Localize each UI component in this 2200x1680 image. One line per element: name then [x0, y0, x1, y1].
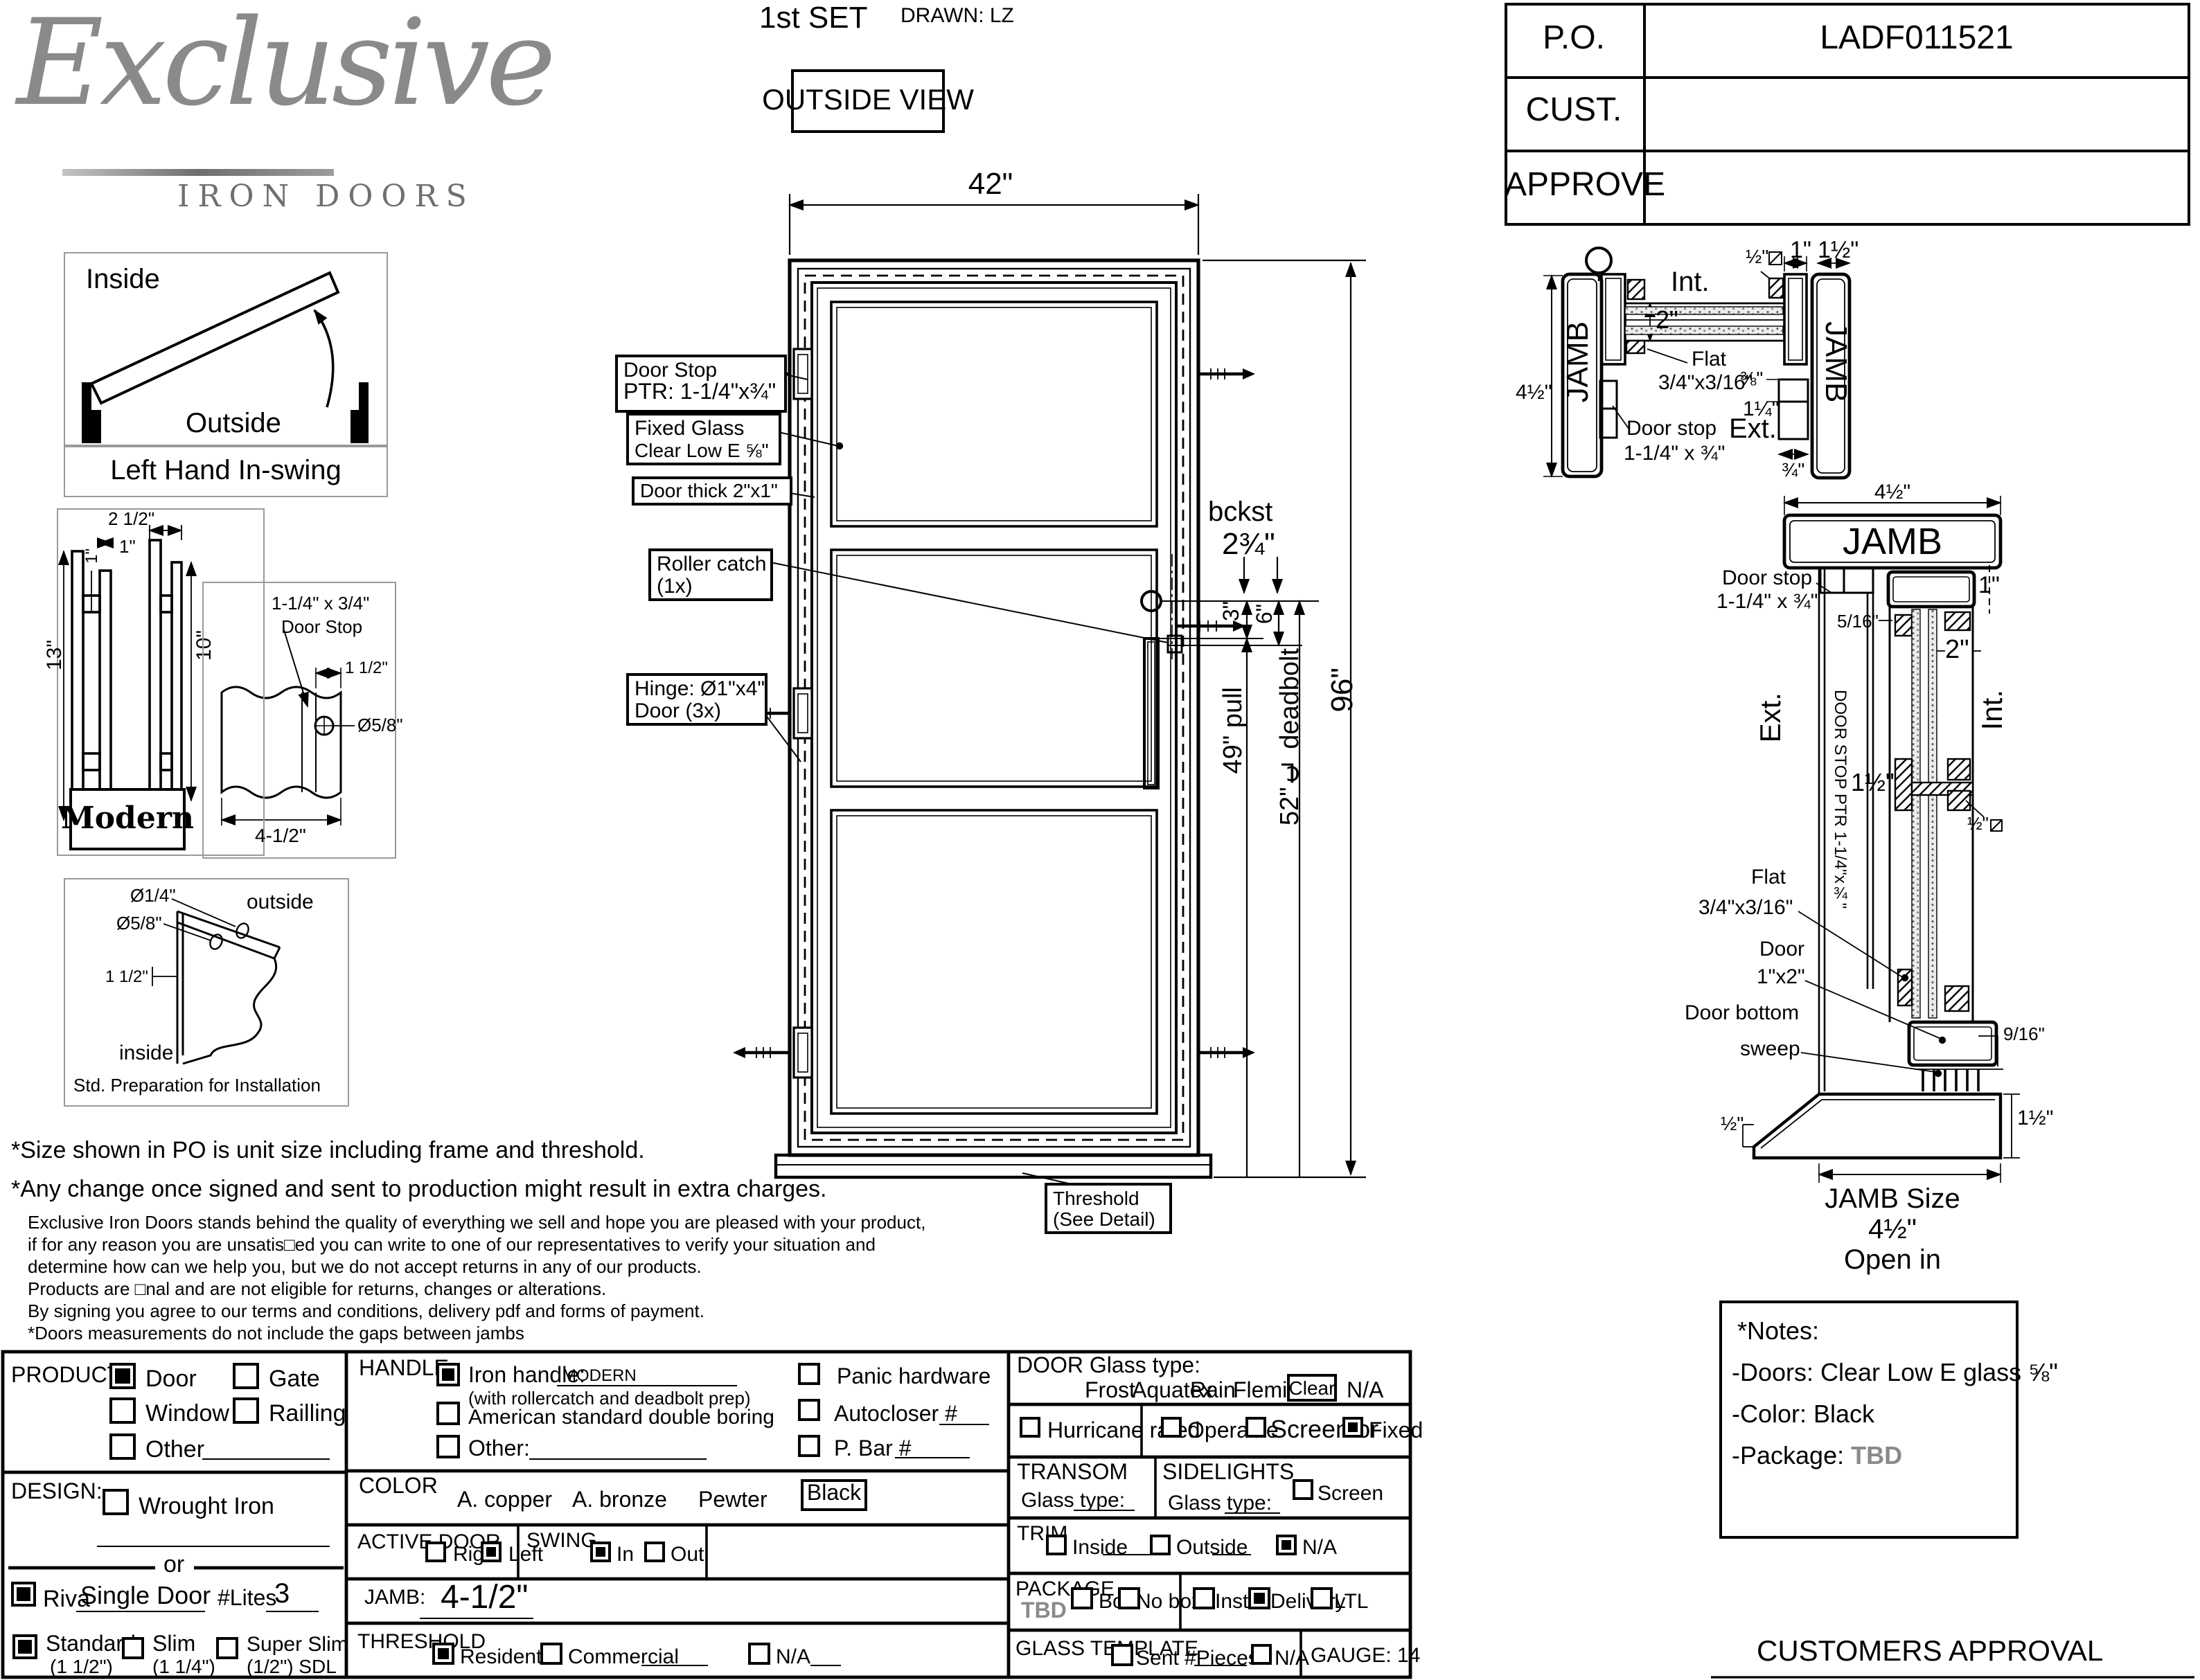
sill-size-value: 4½": [1784, 1216, 2001, 1245]
po-label: P.O.: [1505, 22, 1643, 57]
doorstop-dim-width: 4-1/2": [255, 825, 306, 846]
product-gate-checkbox[interactable]: [233, 1363, 259, 1389]
sidelights-screen-checkbox[interactable]: [1293, 1479, 1313, 1500]
trim-na-label: N/A: [1302, 1537, 1337, 1559]
sill-1-dim: 1": [1978, 573, 2000, 598]
po-table-line: [1505, 150, 2190, 152]
trim-inside-label: Inside: [1072, 1537, 1128, 1559]
swing-out-label: Out: [671, 1544, 704, 1566]
handle-dim-2half: 2 1/2": [108, 510, 154, 528]
drawn-label: DRAWN: LZ: [901, 6, 1014, 27]
sill-ext-label: Ext.: [1757, 692, 1787, 742]
panic-checkbox[interactable]: [798, 1363, 820, 1385]
sill-45-dim: 4½": [1784, 482, 2001, 503]
glass-frost-label[interactable]: Frost: [1085, 1381, 1135, 1404]
prep-outside-label: outside: [247, 892, 314, 913]
prep-dim-1half: 1 1/2": [105, 968, 148, 985]
glass-rain-label[interactable]: Rain: [1190, 1381, 1236, 1404]
doorstop-title-2: Door Stop: [281, 618, 362, 636]
product-other-label: Other: [145, 1438, 204, 1462]
riva-value[interactable]: Single Door: [80, 1583, 211, 1609]
sill-jamb-label: JAMB: [1784, 522, 2001, 561]
deadbolt-height-dim: 52"℄ deadbolt: [1277, 648, 1305, 825]
package-install-checkbox[interactable]: [1193, 1587, 1215, 1609]
riva-checkbox[interactable]: [11, 1582, 36, 1607]
notes-title: *Notes:: [1737, 1319, 1819, 1344]
callout-doorstop-l2: PTR: 1-1/4"x¾": [623, 382, 779, 404]
threshold-na-checkbox[interactable]: [748, 1643, 770, 1665]
color-pewter-label[interactable]: Pewter: [698, 1490, 768, 1513]
callout-roller-l1: Roller catch: [657, 554, 765, 575]
handle-other-label: Other:: [468, 1439, 530, 1462]
riva-blank[interactable]: [76, 1611, 205, 1612]
jamb-head-left-label: JAMB: [1563, 321, 1595, 402]
disclaimer-line2: *Any change once signed and sent to prod…: [11, 1177, 827, 1201]
drawing-sheet: 1st SET DRAWN: LZ OUTSIDE VIEW P.O. LADF…: [0, 0, 2200, 1680]
package-ltl-label: LTL: [1334, 1591, 1368, 1613]
jamb-head-38-dim: ⅜": [1740, 368, 1763, 388]
sidelights-glass-label: Glass type:: [1168, 1493, 1272, 1514]
sill-bottom-l1: Door bottom: [1685, 1003, 1799, 1024]
package-box-checkbox[interactable]: [1071, 1587, 1093, 1609]
callout-doorthick-l1: Door thick 2"x1": [640, 481, 784, 501]
trim-outside-checkbox[interactable]: [1150, 1535, 1171, 1555]
handle-label: HANDLE: [359, 1359, 449, 1382]
design-blank[interactable]: [97, 1546, 330, 1547]
color-black-selected[interactable]: Black: [801, 1479, 867, 1511]
thickness-superslim-sub: (1/2") SDL: [247, 1656, 337, 1677]
handle-other-checkbox[interactable]: [436, 1435, 460, 1458]
sidelights-screen-label: Screen: [1318, 1483, 1383, 1505]
jamb-row-label: JAMB:: [364, 1587, 425, 1609]
thickness-superslim-label: Super Slim: [247, 1634, 348, 1656]
callout-hinge: Hinge: Ø1"x4" Door (3x): [626, 673, 768, 726]
pull-height-dim: 49" pull: [1221, 687, 1248, 774]
outside-view-label: OUTSIDE VIEW: [762, 86, 974, 116]
callout-doorthick: Door thick 2"x1": [632, 476, 792, 506]
sill-halfsq-dim: ½": [1967, 814, 1989, 833]
package-tbd-value: TBD: [1021, 1601, 1067, 1624]
thickness-standard-sub: (1 1/2"): [50, 1656, 113, 1677]
door-height-dim: 96": [1327, 668, 1359, 713]
callout-hinge-l2: Door (3x): [635, 700, 759, 722]
autocloser-checkbox[interactable]: [798, 1399, 820, 1421]
pbar-label: P. Bar #: [834, 1439, 912, 1462]
handle-dim-13: 13": [44, 640, 66, 670]
jamb-head-int-label: Int.: [1671, 269, 1710, 298]
sill-int-label: Int.: [1978, 690, 2009, 730]
sill-door-l1: Door: [1759, 939, 1804, 960]
sill-bottom-l2: sweep: [1740, 1039, 1800, 1060]
prep-inside-label: inside: [119, 1043, 173, 1064]
glass-clear-selected[interactable]: Clear: [1287, 1374, 1337, 1402]
product-door-label: Door: [145, 1367, 197, 1391]
thickness-slim-label: Slim: [152, 1634, 195, 1657]
jamb-head-flat-l1: Flat: [1692, 349, 1726, 370]
sill-112b-dim: 1½": [2017, 1108, 2053, 1129]
swing-inside-label: Inside: [86, 266, 160, 295]
logo-subtitle: IRON DOORS: [177, 183, 475, 215]
lites-blank[interactable]: [266, 1611, 319, 1612]
handle-style-box: Modern: [69, 788, 186, 850]
package-nobox-label: No box: [1136, 1591, 1202, 1613]
disclaimer-line6: Products are □nal and are not eligible f…: [28, 1280, 606, 1298]
backset-value: 2¾": [1222, 529, 1275, 561]
jamb-head-halfsq-dim: ½": [1746, 247, 1768, 267]
logo-script: Exclusive: [17, 3, 552, 127]
jamb-head-15-dim: 1½": [1818, 238, 1859, 262]
template-sent-blank[interactable]: [1194, 1665, 1247, 1666]
template-sent-label: Sent #Pieces: [1136, 1648, 1259, 1670]
disclaimer-line7: By signing you agree to our terms and co…: [28, 1302, 704, 1321]
trim-outside-blank[interactable]: [1212, 1554, 1251, 1555]
threshold-commercial-blank[interactable]: [641, 1665, 708, 1666]
handle-american-label: American standard double boring: [468, 1407, 774, 1429]
jamb-row-blank[interactable]: [420, 1618, 533, 1619]
jamb-head-1-dim: 1": [1790, 238, 1811, 262]
callout-threshold-l1: Threshold: [1053, 1188, 1164, 1208]
design-wrought-checkbox[interactable]: [103, 1489, 129, 1515]
operable-checkbox[interactable]: [1161, 1417, 1182, 1438]
design-label: DESIGN:: [11, 1482, 103, 1505]
sill-doorstop-ptr-label: DOOR STOP PTR 1-1/4"x¾": [1831, 690, 1849, 909]
glass-na-label[interactable]: N/A: [1347, 1381, 1383, 1404]
thickness-slim-checkbox[interactable]: [122, 1637, 144, 1659]
swing-in-label: In: [616, 1544, 634, 1566]
sill-door-l2: 1"x2": [1757, 967, 1805, 988]
notes-package-label: -Package:: [1732, 1442, 1844, 1469]
product-door-checkbox[interactable]: [109, 1363, 136, 1389]
fixed-label: Fixed: [1369, 1421, 1423, 1444]
jamb-head-34-dim: ¾": [1782, 460, 1804, 480]
logo-underline: [62, 169, 334, 176]
sidelights-glass-blank[interactable]: [1225, 1512, 1280, 1514]
sill-size-label: JAMB Size: [1784, 1186, 2001, 1215]
swing-outside-label: Outside: [186, 410, 281, 439]
handle-dim-1b: 1": [83, 548, 100, 564]
design-or-label: or: [163, 1553, 184, 1577]
pbar-checkbox[interactable]: [798, 1435, 820, 1457]
lites-label: #Lites: [218, 1589, 276, 1611]
thickness-slim-sub: (1 1/4"): [152, 1656, 215, 1677]
handle-iron-checkbox[interactable]: [436, 1363, 460, 1386]
trim-outside-label: Outside: [1176, 1537, 1248, 1559]
customers-approval-label: CUSTOMERS APPROVAL: [1757, 1637, 2103, 1668]
prep-caption: Std. Preparation for Installation: [73, 1076, 321, 1095]
outside-view-box: OUTSIDE VIEW: [791, 69, 945, 133]
glass-type-label: DOOR Glass type:: [1017, 1356, 1200, 1379]
doorstop-title-1: 1-1/4" x 3/4": [272, 594, 369, 613]
handle-other-blank[interactable]: [529, 1458, 707, 1460]
callout-fixedglass-l1: Fixed Glass: [635, 418, 773, 440]
approve-label: APPROVE: [1505, 169, 1643, 204]
transom-glass-blank[interactable]: [1074, 1510, 1135, 1511]
hinge-icon: [794, 349, 812, 1078]
notes-package: -Package: TBD: [1732, 1443, 1902, 1469]
product-label: PRODUCT:: [11, 1366, 125, 1388]
sill-stop-l2: 1-1/4" x ¾": [1716, 591, 1818, 613]
pbar-blank[interactable]: [895, 1457, 970, 1458]
jamb-row-value[interactable]: 4-1/2": [441, 1582, 528, 1616]
prep-dim-quarter: Ø1/4": [130, 886, 176, 905]
callout-threshold: Threshold (See Detail): [1045, 1183, 1172, 1234]
color-black-label: Black: [807, 1483, 861, 1506]
jamb-head-ext-label: Ext.: [1729, 415, 1777, 445]
callout-roller-l2: (1x): [657, 575, 765, 597]
transom-label: TRANSOM: [1017, 1463, 1128, 1485]
disclaimer-line8: *Doors measurements do not include the g…: [28, 1324, 524, 1343]
door-width-dim: 42": [783, 169, 1198, 201]
notes-doors: -Doors: Clear Low E glass ⅝": [1732, 1360, 2058, 1386]
sill-516-dim: 5/16": [1837, 612, 1879, 631]
handle-dim-1a: 1": [119, 537, 136, 556]
template-na-checkbox[interactable]: [1251, 1644, 1272, 1665]
autocloser-blank[interactable]: [939, 1424, 989, 1425]
doorstop-dim-hole: Ø5/8": [357, 716, 403, 735]
sill-flat-l2: 3/4"x3/16": [1698, 897, 1793, 919]
po-value: LADF011521: [1643, 22, 2190, 57]
threshold-na-blank[interactable]: [810, 1665, 841, 1666]
sill-916-dim: 9/16": [2003, 1025, 2045, 1044]
backset-label: bckst: [1208, 499, 1272, 528]
threshold-na-label: N/A: [776, 1647, 810, 1668]
sill-stop-l1: Door stop: [1722, 568, 1812, 589]
disclaimer-line3: Exclusive Iron Doors stands behind the q…: [28, 1213, 925, 1232]
callout-roller: Roller catch (1x): [648, 548, 773, 601]
callout-threshold-l2: (See Detail): [1053, 1208, 1164, 1228]
fixed-checkbox[interactable]: [1342, 1417, 1363, 1438]
callout-fixedglass: Fixed Glass Clear Low E ⅝": [626, 413, 781, 465]
dim-3in: 3": [1222, 601, 1245, 621]
lites-value[interactable]: 3: [274, 1580, 290, 1609]
panic-label: Panic hardware: [837, 1367, 991, 1390]
thickness-standard-checkbox[interactable]: [12, 1634, 37, 1659]
sill-112-dim: 1½": [1851, 770, 1895, 796]
threshold-commercial-checkbox[interactable]: [540, 1643, 562, 1665]
set-label: 1st SET: [759, 3, 868, 35]
sill-flat-l1: Flat: [1751, 867, 1786, 888]
jamb-head-45-dim: 4½": [1516, 382, 1552, 404]
product-gate-label: Gate: [269, 1367, 320, 1391]
callout-fixedglass-l2: Clear Low E ⅝": [635, 440, 773, 460]
disclaimer-line5: determine how can we help you, but we do…: [28, 1258, 702, 1276]
prep-dim-fiveeighth: Ø5/8": [116, 914, 162, 933]
product-other-checkbox[interactable]: [109, 1433, 136, 1460]
jamb-head-2-dim: 2": [1656, 307, 1678, 333]
design-wrought-label: Wrought Iron: [139, 1494, 274, 1519]
transom-glass-label: Glass type:: [1021, 1490, 1125, 1512]
color-label: COLOR: [359, 1476, 438, 1499]
product-window-label: Window: [145, 1402, 229, 1426]
product-other-blank[interactable]: [202, 1458, 330, 1460]
sill-half-dim: ½": [1721, 1114, 1744, 1134]
glass-clear-label: Clear: [1289, 1377, 1336, 1397]
trim-inside-checkbox[interactable]: [1046, 1535, 1067, 1555]
handle-american-checkbox[interactable]: [436, 1402, 460, 1425]
active-right-checkbox[interactable]: [425, 1542, 446, 1562]
disclaimer-line4: if for any reason you are unsatis□ed you…: [28, 1235, 876, 1254]
callout-doorstop-l1: Door Stop: [623, 360, 779, 382]
handle-style-label: Modern: [61, 803, 194, 835]
trim-na-checkbox[interactable]: [1276, 1535, 1297, 1555]
package-delivery-checkbox[interactable]: [1248, 1587, 1270, 1609]
jamb-head-stop-l2: 1-1/4" x ¾": [1624, 443, 1725, 465]
disclaimer-line1: *Size shown in PO is unit size including…: [11, 1138, 645, 1163]
sill-2-dim: 2": [1945, 637, 1969, 665]
jamb-head-flat-l2: 3/4"x3/16": [1658, 373, 1753, 394]
cust-label: CUST.: [1505, 94, 1643, 129]
product-railling-label: Railling: [269, 1402, 346, 1426]
dim-6in: 6": [1255, 604, 1278, 624]
anchor-screw-icon: [745, 374, 1243, 1053]
po-table-line: [1505, 76, 2190, 79]
package-ltl-checkbox[interactable]: [1311, 1587, 1333, 1609]
sidelights-label: SIDELIGHTS: [1162, 1463, 1294, 1485]
handle-iron-value[interactable]: MODERN: [562, 1367, 637, 1384]
screen-or-checkbox[interactable]: [1245, 1417, 1266, 1438]
hurricane-checkbox[interactable]: [1020, 1417, 1040, 1438]
swing-caption: Left Hand In-swing: [64, 457, 388, 486]
swing-out-checkbox[interactable]: [644, 1542, 665, 1562]
template-na-label: N/A: [1275, 1648, 1309, 1670]
color-bronze-label[interactable]: A. bronze: [572, 1490, 667, 1513]
callout-hinge-l1: Hinge: Ø1"x4": [635, 679, 759, 700]
product-railling-checkbox[interactable]: [233, 1397, 259, 1424]
notes-color: -Color: Black: [1732, 1402, 1874, 1427]
handle-iron-blank[interactable]: [557, 1385, 737, 1386]
doorstop-dim-1half: 1 1/2": [345, 659, 388, 677]
threshold-residential-checkbox[interactable]: [432, 1643, 454, 1665]
product-window-checkbox[interactable]: [109, 1397, 136, 1424]
swing-label: SWING: [526, 1530, 597, 1552]
color-copper-label[interactable]: A. copper: [457, 1490, 552, 1513]
jamb-head-stop-l1: Door stop: [1626, 418, 1716, 440]
swing-in-checkbox[interactable]: [590, 1542, 611, 1562]
gauge-label: GAUGE: 14: [1311, 1645, 1420, 1667]
handle-note: (with rollercatch and deadbolt prep): [468, 1389, 751, 1408]
jamb-head-right-label: JAMB: [1819, 321, 1851, 402]
active-left-checkbox[interactable]: [481, 1542, 502, 1562]
notes-package-value: TBD: [1851, 1442, 1902, 1469]
sill-open-label: Open in: [1784, 1246, 2001, 1276]
template-sent-checkbox[interactable]: [1111, 1644, 1133, 1666]
thickness-superslim-checkbox[interactable]: [216, 1637, 238, 1659]
callout-doorstop: Door Stop PTR: 1-1/4"x¾": [615, 355, 787, 413]
